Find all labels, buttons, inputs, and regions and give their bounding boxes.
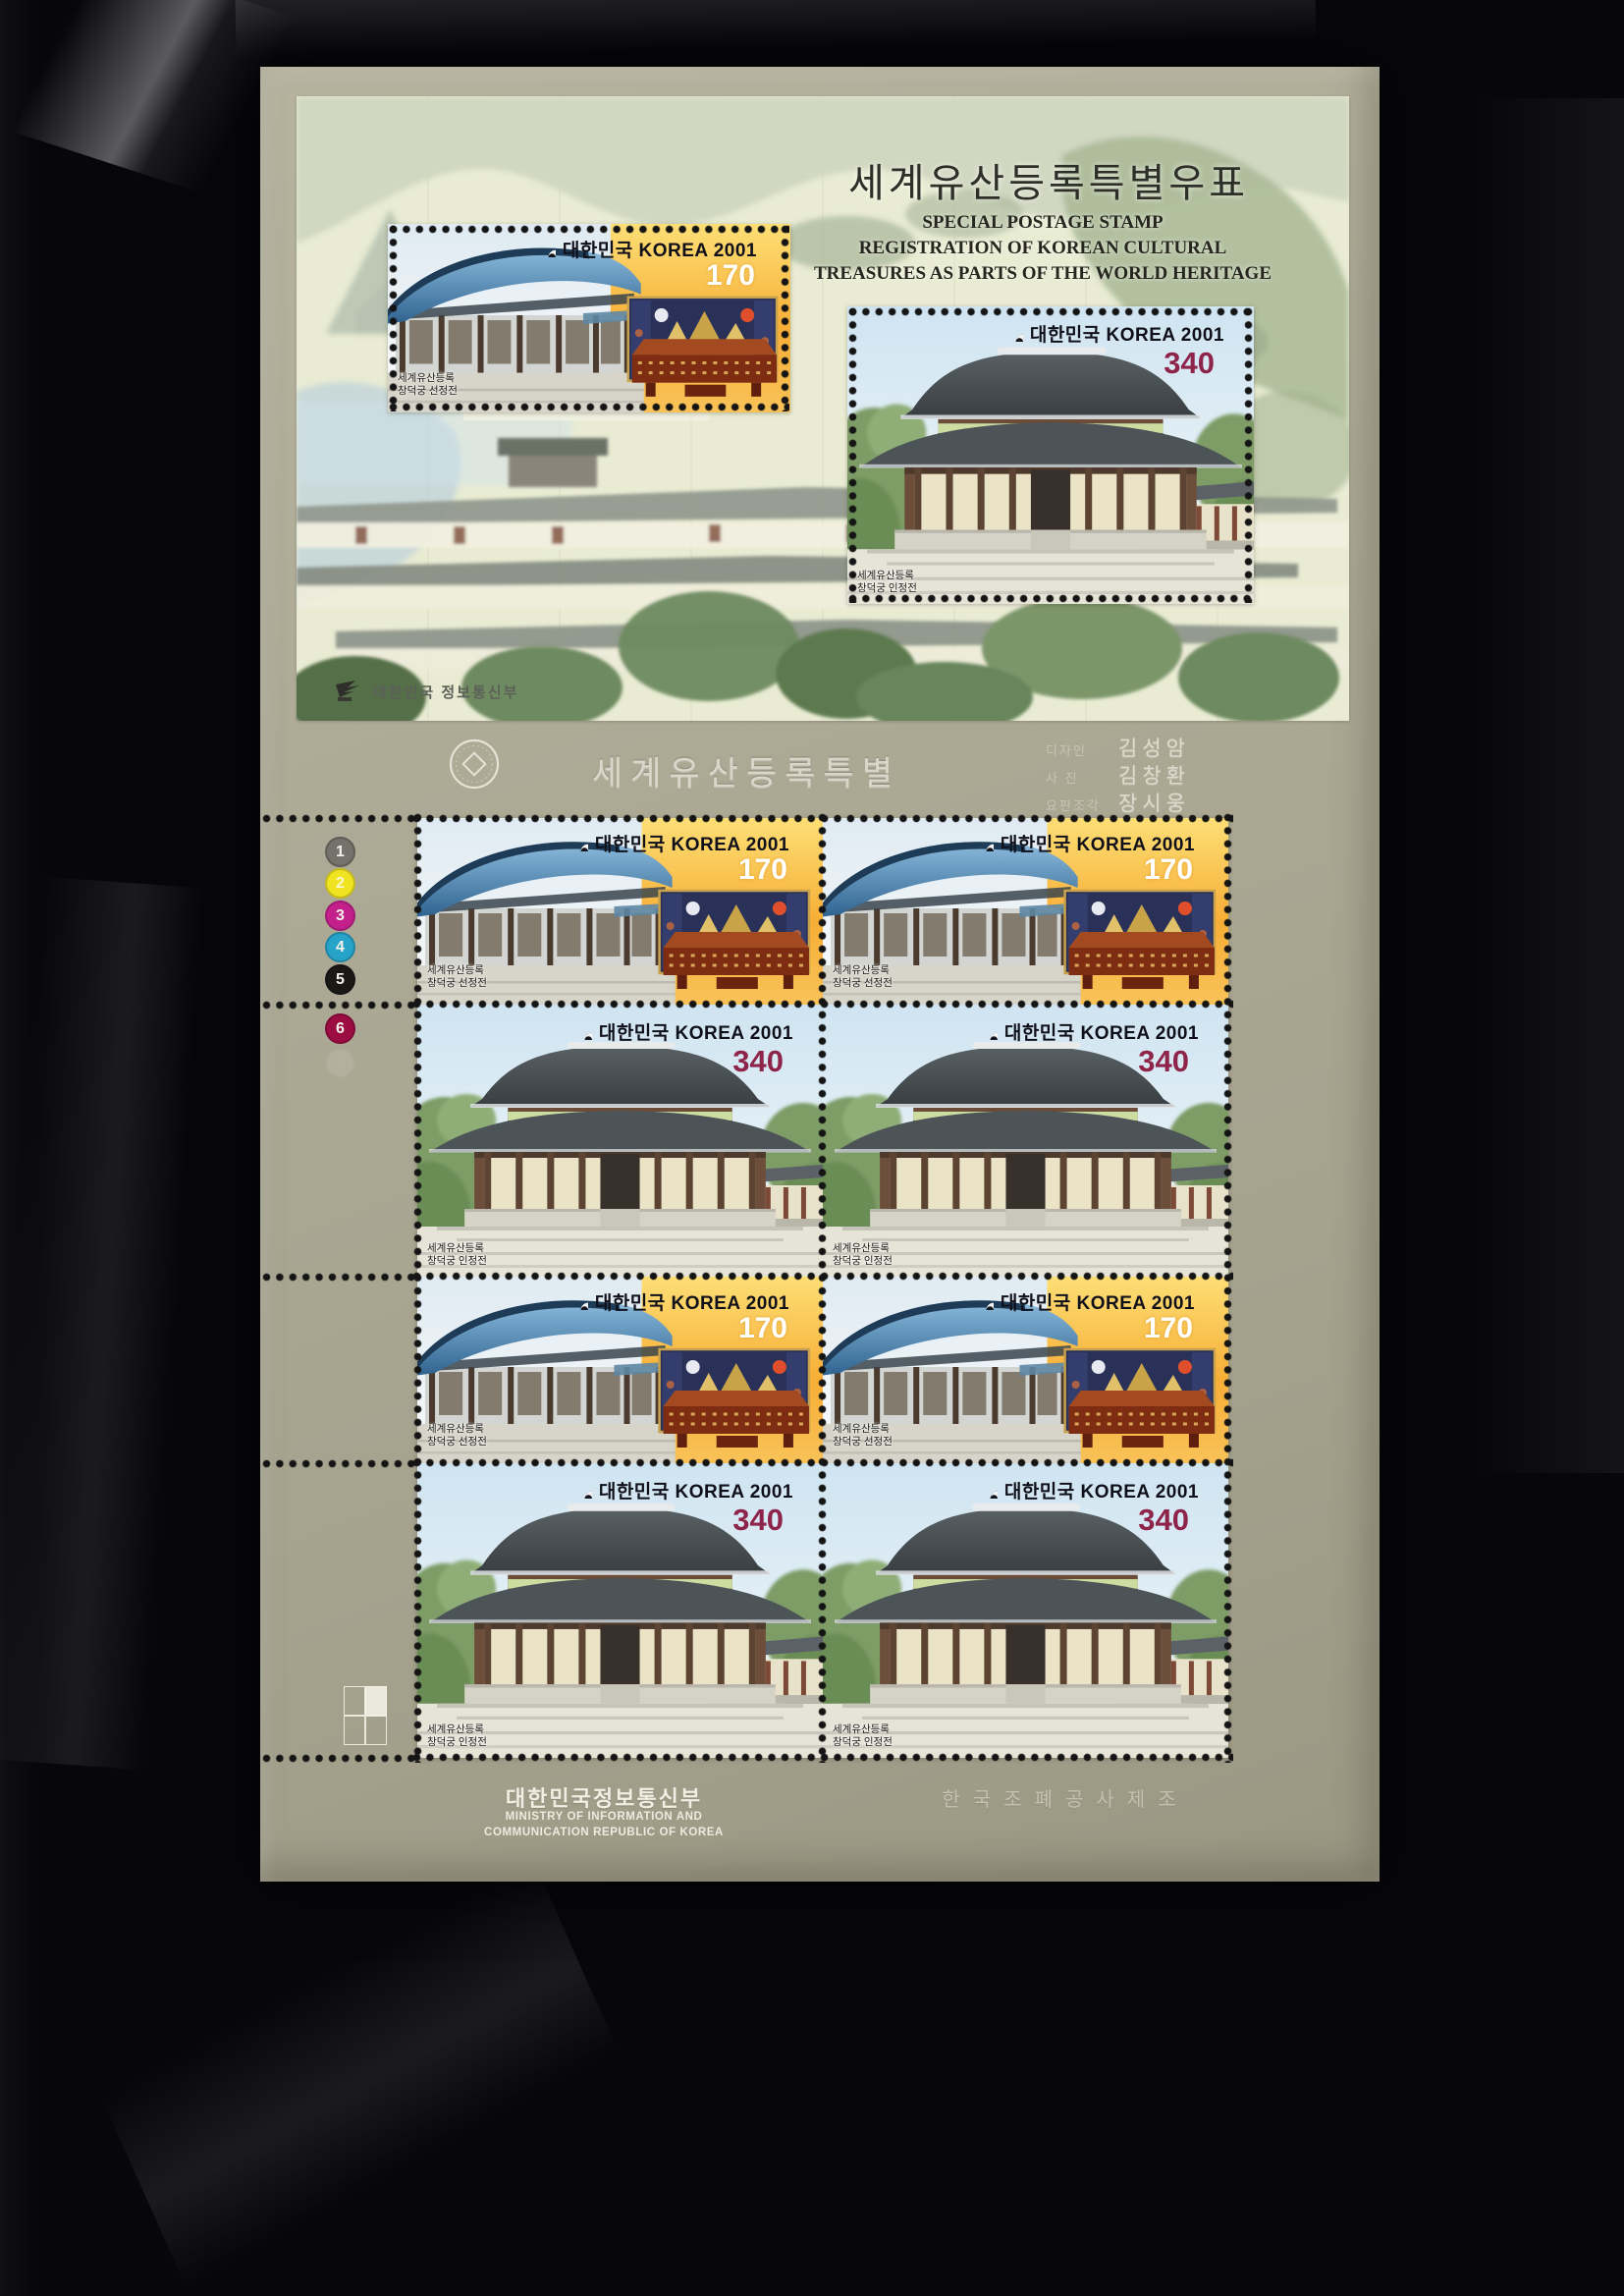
taegeuk-icon xyxy=(571,1293,588,1310)
stamp-sheet-photo: 세계유산등록특별우표 SPECIAL POSTAGE STAMP REGISTR… xyxy=(0,0,1624,2296)
color-dot-number: 3 xyxy=(336,907,345,925)
stamp-country-text: 대한민국 KOREA 2001 xyxy=(563,236,757,262)
stamp-caption: 세계유산등록 창덕궁 선정전 xyxy=(398,372,458,399)
registration-square xyxy=(344,1686,387,1745)
color-dot-number: 6 xyxy=(336,1020,345,1038)
sheet-title-korean: 세계유산등록특별우표 xyxy=(827,151,1271,208)
perforation xyxy=(389,403,789,411)
plastic-wrinkle xyxy=(1375,98,1624,1473)
stamp-340: 대한민국 KOREA 2001 340 세계유산등록창덕궁 인정전 xyxy=(823,1005,1228,1277)
stamp-value: 340 xyxy=(1138,1044,1189,1079)
stamp-caption: 세계유산등록창덕궁 선정전 xyxy=(427,964,487,991)
taegeuk-icon xyxy=(539,241,556,257)
taegeuk-icon xyxy=(1006,325,1023,342)
color-dot-number: 2 xyxy=(336,875,345,893)
stamp-value: 340 xyxy=(1164,346,1215,381)
sheet-subtitle-english: SPECIAL POSTAGE STAMP REGISTRATION OF KO… xyxy=(738,210,1347,288)
caption-line-2: 창덕궁 선정전 xyxy=(833,977,893,991)
stamp-caption: 세계유산등록창덕궁 인정전 xyxy=(427,1723,487,1750)
perforation xyxy=(413,813,422,1763)
footer-ministry-english-1: MINISTRY OF INFORMATION AND xyxy=(417,1811,790,1823)
stamp-country-line: 대한민국 KOREA 2001 xyxy=(981,1477,1199,1503)
stamp-country-line: 대한민국 KOREA 2001 xyxy=(981,1018,1199,1045)
color-dot-number: 1 xyxy=(336,844,345,861)
panel-credit-text: 대한민국 정보통신부 xyxy=(373,682,518,702)
credit-designer: 디자인 김성암 xyxy=(1046,733,1262,758)
credit-label: 요판조각 xyxy=(1046,795,1118,814)
stamp-340: 대한민국 KOREA 2001 340 세계유산등록창덕궁 인정전 xyxy=(823,1463,1228,1758)
stamp-grid-block: 대한민국 KOREA 2001 170 세계유산등록창덕궁 선정전 대한민국 K… xyxy=(417,818,1228,1758)
credit-photographer: 사 진 김창환 xyxy=(1046,760,1262,786)
panel-credit-line: 대한민국 정보통신부 xyxy=(334,678,518,705)
stamp-country-line: 대한민국 KOREA 2001 xyxy=(575,1018,793,1045)
stamp-170: 대한민국 KOREA 2001 170 세계유산등록창덕궁 선정전 xyxy=(417,818,823,1005)
caption-line-2: 창덕궁 선정전 xyxy=(833,1436,893,1449)
stamp-value: 170 xyxy=(1144,853,1193,887)
stamp-value: 170 xyxy=(706,259,755,293)
color-dot-3: 3 xyxy=(325,901,355,931)
caption-line-2: 창덕궁 선정전 xyxy=(427,977,487,991)
stamp-caption: 세계유산등록창덕궁 선정전 xyxy=(833,964,893,991)
caption-line-1: 세계유산등록 xyxy=(833,1723,893,1737)
plastic-wrinkle xyxy=(0,0,39,2296)
stamp-country-text: 대한민국 KOREA 2001 xyxy=(1030,320,1224,347)
color-dot-number: 5 xyxy=(336,971,345,989)
caption-line-1: 세계유산등록 xyxy=(833,1423,893,1437)
perforation xyxy=(389,225,398,411)
plastic-wrinkle xyxy=(0,877,276,1776)
color-dot-2: 2 xyxy=(325,868,355,899)
credit-engraver: 요판조각 장시웅 xyxy=(1046,788,1262,813)
caption-line-1: 세계유산등록 xyxy=(857,570,917,583)
taegeuk-icon xyxy=(981,1023,998,1040)
taegeuk-icon xyxy=(977,1293,994,1310)
stamp-country-line: 대한민국 KOREA 2001 xyxy=(977,1288,1195,1315)
stamp-value: 340 xyxy=(732,1503,784,1538)
footer-printer: 한국조폐공사제조 xyxy=(869,1783,1262,1812)
caption-line-1: 세계유산등록 xyxy=(427,1242,487,1256)
caption-line-1: 세계유산등록 xyxy=(427,1723,487,1737)
registration-cell xyxy=(365,1716,387,1745)
caption-line-2: 창덕궁 인정전 xyxy=(427,1736,487,1750)
registration-cell xyxy=(344,1686,365,1716)
stamp-170: 대한민국 KOREA 2001 170 세계유산등록창덕궁 선정전 xyxy=(823,1277,1228,1463)
stamp-country-line: 대한민국 KOREA 2001 xyxy=(571,1288,789,1315)
color-dot-4: 4 xyxy=(325,932,355,962)
perforation xyxy=(848,594,1253,603)
credit-name: 김창환 xyxy=(1118,760,1190,790)
caption-line-2: 창덕궁 인정전 xyxy=(833,1255,893,1269)
perforation xyxy=(781,225,789,411)
caption-line-2: 창덕궁 선정전 xyxy=(398,385,458,399)
stamp-country-text: 대한민국 KOREA 2001 xyxy=(1004,1477,1199,1503)
postal-emblem-icon xyxy=(448,738,501,791)
stamp-caption: 세계유산등록 창덕궁 인정전 xyxy=(857,570,917,596)
subtitle-line-3: TREASURES AS PARTS OF THE WORLD HERITAGE xyxy=(738,261,1347,287)
stamp-value: 170 xyxy=(738,853,787,887)
stamp-country-text: 대한민국 KOREA 2001 xyxy=(1001,1288,1195,1315)
band-title: 세계유산등록특별 xyxy=(584,746,908,794)
registration-cell xyxy=(344,1716,365,1745)
stamp-country-text: 대한민국 KOREA 2001 xyxy=(595,1288,789,1315)
caption-line-1: 세계유산등록 xyxy=(427,1423,487,1437)
taegeuk-icon xyxy=(575,1023,592,1040)
caption-line-1: 세계유산등록 xyxy=(833,964,893,978)
stamp-country-text: 대한민국 KOREA 2001 xyxy=(1004,1018,1199,1045)
stamp-170: 대한민국 KOREA 2001 170 세계유산등록창덕궁 선정전 xyxy=(823,818,1228,1005)
caption-line-1: 세계유산등록 xyxy=(833,1242,893,1256)
credit-label: 사 진 xyxy=(1046,768,1118,787)
credit-label: 디자인 xyxy=(1046,740,1118,759)
stamp-value: 340 xyxy=(1138,1503,1189,1538)
perforation xyxy=(389,225,789,234)
caption-line-1: 세계유산등록 xyxy=(427,964,487,978)
color-dot-5: 5 xyxy=(325,964,355,995)
stamp-340: 대한민국 KOREA 2001 340 세계유산등록창덕궁 인정전 xyxy=(417,1005,823,1277)
registration-cell-filled xyxy=(365,1686,387,1716)
stamp-country-line: 대한민국 KOREA 2001 xyxy=(571,830,789,856)
stamp-340: 대한민국 KOREA 2001 340 세계유산등록창덕궁 인정전 xyxy=(417,1463,823,1758)
stamp-country-line: 대한민국 KOREA 2001 xyxy=(977,830,1195,856)
stamp-country-line: 대한민국 KOREA 2001 xyxy=(539,236,757,262)
subtitle-line-2: REGISTRATION OF KOREAN CULTURAL xyxy=(738,236,1347,261)
caption-line-2: 창덕궁 인정전 xyxy=(833,1736,893,1750)
caption-line-2: 창덕궁 인정전 xyxy=(427,1255,487,1269)
taegeuk-icon xyxy=(977,835,994,851)
perforation xyxy=(848,307,1253,316)
plastic-wrinkle xyxy=(71,1830,655,2296)
footer-ministry-korean: 대한민국정보통신부 xyxy=(437,1781,771,1813)
color-dot-number: 7 xyxy=(336,1055,345,1072)
stamp-country-text: 대한민국 KOREA 2001 xyxy=(599,1018,793,1045)
perforation xyxy=(1244,307,1253,603)
color-dot-7: 7 xyxy=(325,1048,355,1078)
stamp-caption: 세계유산등록창덕궁 인정전 xyxy=(833,1242,893,1269)
perforation xyxy=(1223,813,1232,1763)
stamp-170: 대한민국 KOREA 2001 170 세계유산등록창덕궁 선정전 xyxy=(417,1277,823,1463)
perforation xyxy=(848,307,857,603)
color-dot-1: 1 xyxy=(325,837,355,867)
caption-line-2: 창덕궁 선정전 xyxy=(427,1436,487,1449)
color-dot-6: 6 xyxy=(325,1013,355,1044)
ministry-mark-icon xyxy=(334,679,363,704)
stamp-caption: 세계유산등록창덕궁 인정전 xyxy=(427,1242,487,1269)
plastic-wrinkle xyxy=(236,0,1317,59)
footer-ministry-english-2: COMMUNICATION REPUBLIC OF KOREA xyxy=(417,1827,790,1838)
margin-perforation xyxy=(262,1459,417,1468)
stamp-caption: 세계유산등록창덕궁 인정전 xyxy=(833,1723,893,1750)
subtitle-line-1: SPECIAL POSTAGE STAMP xyxy=(738,210,1347,236)
stamp-country-text: 대한민국 KOREA 2001 xyxy=(595,830,789,856)
credit-name: 김성암 xyxy=(1118,733,1190,762)
stamp-country-text: 대한민국 KOREA 2001 xyxy=(599,1477,793,1503)
credit-name: 장시웅 xyxy=(1118,788,1190,817)
stamp-caption: 세계유산등록창덕궁 선정전 xyxy=(833,1423,893,1449)
stamp-value: 340 xyxy=(732,1044,784,1079)
taegeuk-icon xyxy=(575,1482,592,1499)
color-dot-number: 4 xyxy=(336,939,345,957)
stamp-value: 170 xyxy=(738,1312,787,1345)
margin-perforation xyxy=(262,1001,417,1010)
perforation xyxy=(818,813,827,1763)
margin-perforation xyxy=(262,1754,417,1763)
stamp-sheet: 세계유산등록특별우표 SPECIAL POSTAGE STAMP REGISTR… xyxy=(260,67,1380,1882)
margin-perforation xyxy=(262,1273,417,1282)
caption-line-1: 세계유산등록 xyxy=(398,372,458,386)
stamp-caption: 세계유산등록창덕궁 선정전 xyxy=(427,1423,487,1449)
stamp-value: 170 xyxy=(1144,1312,1193,1345)
stamp-340-souvenir: 대한민국 KOREA 2001 340 세계유산등록 창덕궁 인정전 xyxy=(847,306,1254,604)
taegeuk-icon xyxy=(571,835,588,851)
stamp-country-text: 대한민국 KOREA 2001 xyxy=(1001,830,1195,856)
stamp-170-souvenir: 대한민국 KOREA 2001 170 세계유산등록 창덕궁 선정전 xyxy=(388,224,790,412)
margin-perforation xyxy=(262,814,417,823)
stamp-country-line: 대한민국 KOREA 2001 xyxy=(575,1477,793,1503)
souvenir-artwork-panel: 세계유산등록특별우표 SPECIAL POSTAGE STAMP REGISTR… xyxy=(297,96,1349,721)
stamp-country-line: 대한민국 KOREA 2001 xyxy=(1006,320,1224,347)
taegeuk-icon xyxy=(981,1482,998,1499)
